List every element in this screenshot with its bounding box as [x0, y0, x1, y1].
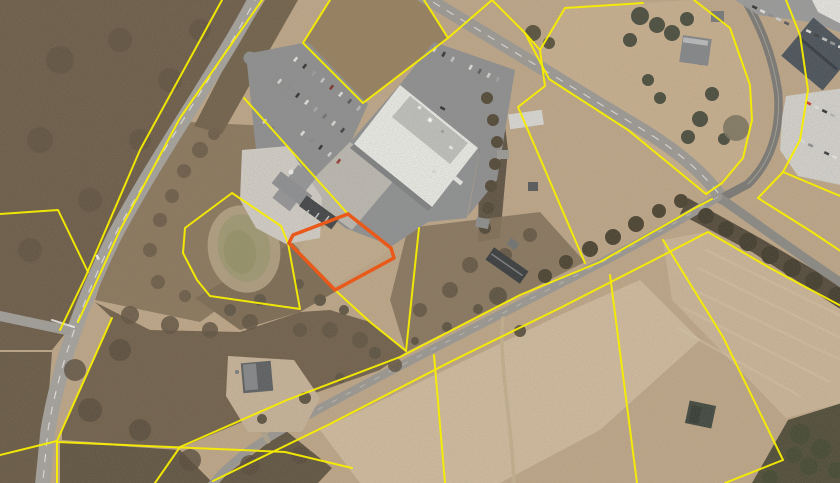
tree — [27, 127, 53, 153]
tree — [109, 339, 131, 361]
tree — [680, 12, 694, 26]
tree — [811, 439, 831, 459]
tree — [78, 398, 102, 422]
tree — [179, 449, 201, 471]
tree — [642, 74, 654, 86]
tree — [121, 306, 139, 324]
tree — [143, 243, 157, 257]
tree — [177, 164, 191, 178]
tree — [623, 33, 637, 47]
tree — [411, 337, 419, 345]
tree — [242, 314, 258, 330]
tree — [314, 294, 326, 306]
tree — [664, 25, 680, 41]
tree — [462, 257, 478, 273]
tree — [582, 241, 598, 257]
tree — [681, 130, 695, 144]
shed — [497, 150, 509, 159]
tree — [692, 111, 708, 127]
tree — [523, 228, 537, 242]
tree — [652, 204, 666, 218]
tree — [108, 28, 132, 52]
tree — [192, 142, 208, 158]
tree — [482, 202, 494, 214]
tree — [352, 332, 368, 348]
tree — [189, 19, 211, 41]
map-render-root — [0, 0, 840, 483]
tree — [240, 455, 260, 475]
tree — [485, 180, 497, 192]
tree — [559, 255, 573, 269]
tree — [698, 208, 714, 224]
tree — [153, 213, 167, 227]
tree — [786, 447, 802, 463]
tree — [161, 316, 179, 334]
tree — [790, 424, 810, 444]
tree — [202, 322, 218, 338]
tree — [481, 92, 493, 104]
tree — [649, 17, 665, 33]
tree — [631, 7, 649, 25]
tree — [605, 229, 621, 245]
aerial-map[interactable] — [0, 0, 840, 483]
house-southwest-gable — [243, 363, 258, 390]
tree — [800, 457, 818, 475]
tree — [339, 305, 349, 315]
church-steeple — [289, 170, 294, 175]
tree — [473, 304, 483, 314]
tree — [151, 275, 165, 289]
tree — [179, 290, 191, 302]
tree — [489, 158, 501, 170]
tree — [369, 347, 381, 359]
tree — [413, 303, 427, 317]
tree — [674, 194, 688, 208]
tree — [783, 259, 801, 277]
tree — [491, 136, 503, 148]
tree — [208, 128, 220, 140]
tree — [739, 233, 757, 251]
tree — [538, 269, 552, 283]
tree — [257, 414, 267, 424]
shed — [528, 182, 538, 191]
tree — [761, 246, 779, 264]
tree — [129, 419, 151, 441]
antenna-tower — [235, 370, 239, 374]
tree — [628, 216, 644, 232]
tree — [718, 221, 734, 237]
tree — [293, 323, 307, 337]
tree — [487, 114, 499, 126]
tree — [129, 129, 151, 151]
tree — [165, 189, 179, 203]
tree — [64, 359, 86, 381]
tree — [224, 304, 236, 316]
map-viewport[interactable] — [0, 0, 840, 483]
tree — [78, 188, 102, 212]
tree — [442, 282, 458, 298]
tree — [654, 92, 666, 104]
tree — [46, 46, 74, 74]
bare-tree — [723, 115, 749, 141]
tree — [705, 87, 719, 101]
tree — [18, 238, 42, 262]
tree — [322, 322, 338, 338]
shed — [711, 11, 724, 22]
